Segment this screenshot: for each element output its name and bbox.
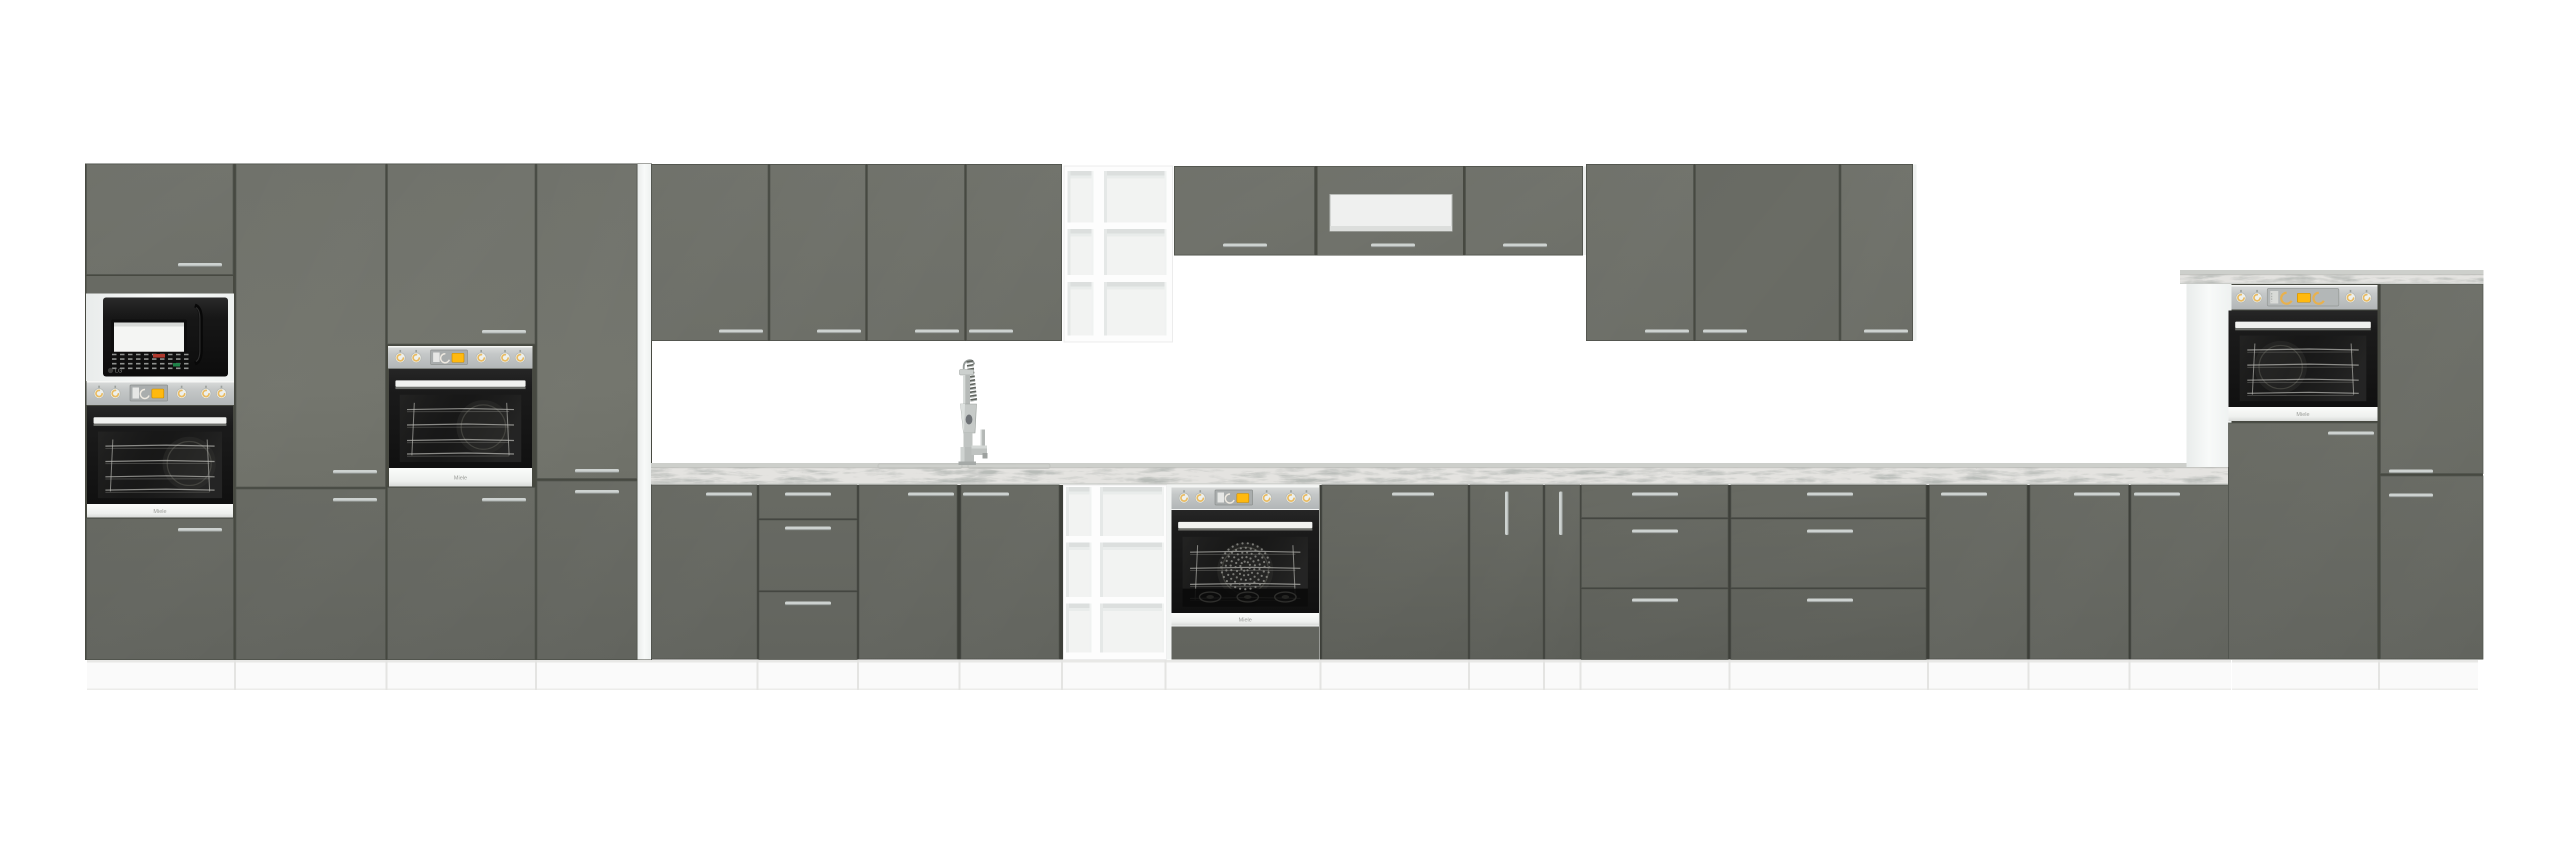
svg-text:Miele: Miele: [1239, 617, 1252, 623]
svg-text:Miele: Miele: [153, 509, 166, 515]
svg-text:Miele: Miele: [454, 475, 467, 481]
svg-text:LG: LG: [115, 369, 122, 375]
svg-text:Miele: Miele: [2296, 412, 2309, 418]
